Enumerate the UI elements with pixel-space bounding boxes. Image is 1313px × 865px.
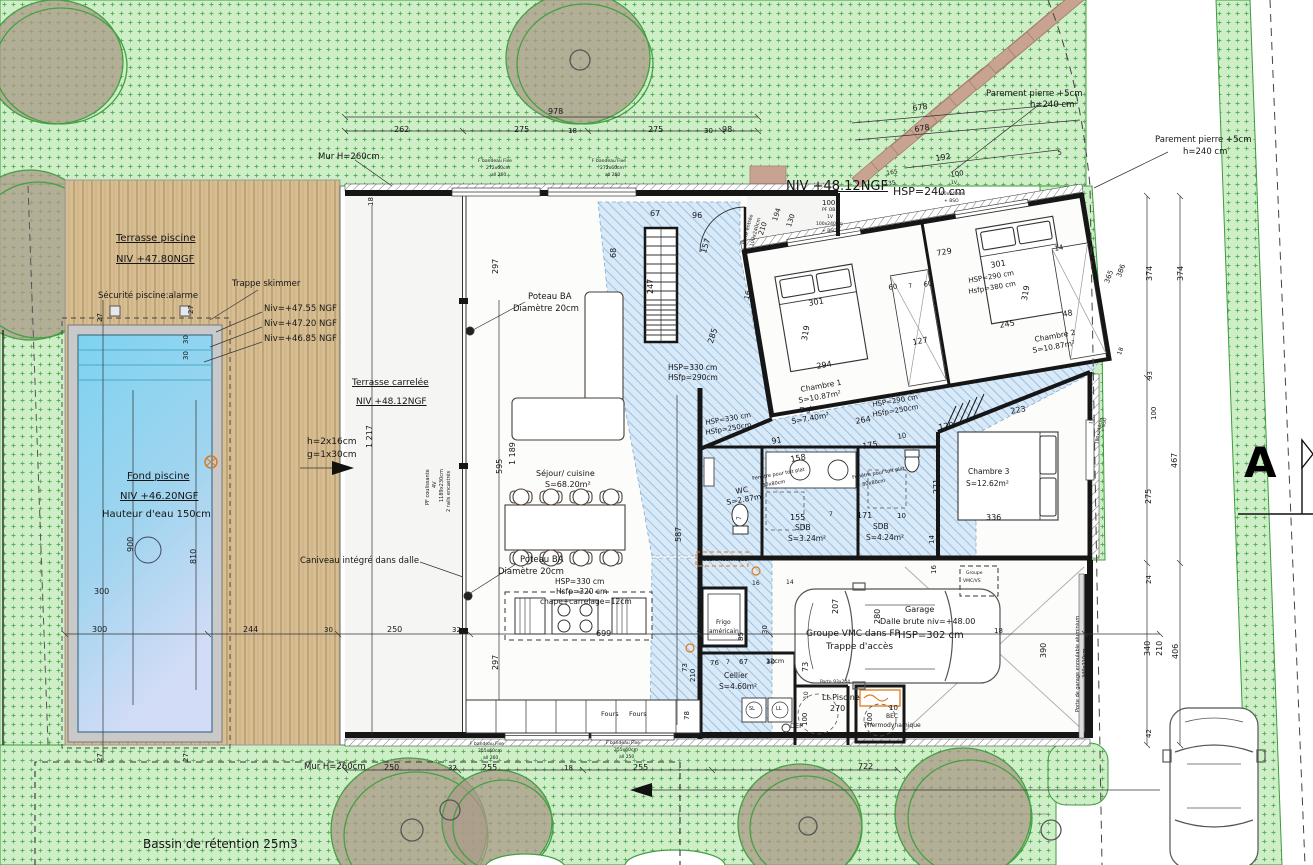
washer bbox=[768, 698, 792, 722]
skimmer-box bbox=[180, 306, 190, 316]
section-marker-a: A bbox=[1244, 438, 1277, 487]
bed bbox=[775, 264, 868, 372]
floor-plan-canvas: Terrasse piscineNIV +47.80NGFSécurité pi… bbox=[0, 0, 1313, 865]
fridge-niche bbox=[702, 588, 746, 646]
road-car bbox=[1163, 708, 1265, 865]
pool bbox=[68, 325, 222, 742]
vanity bbox=[766, 452, 856, 488]
pool-alarm-box bbox=[110, 306, 120, 316]
kitchen-counter bbox=[466, 700, 700, 733]
plan-drawing bbox=[0, 0, 1313, 865]
column bbox=[466, 327, 474, 335]
sofa bbox=[512, 398, 624, 440]
heat-pump bbox=[860, 690, 900, 706]
bed bbox=[958, 432, 1058, 520]
garage-car bbox=[795, 583, 1000, 689]
garage-door bbox=[1079, 574, 1084, 738]
washer bbox=[742, 698, 766, 722]
dining-table bbox=[505, 505, 625, 550]
stairs-main bbox=[645, 228, 677, 342]
wc-fixture bbox=[704, 458, 714, 486]
bed bbox=[976, 216, 1069, 324]
